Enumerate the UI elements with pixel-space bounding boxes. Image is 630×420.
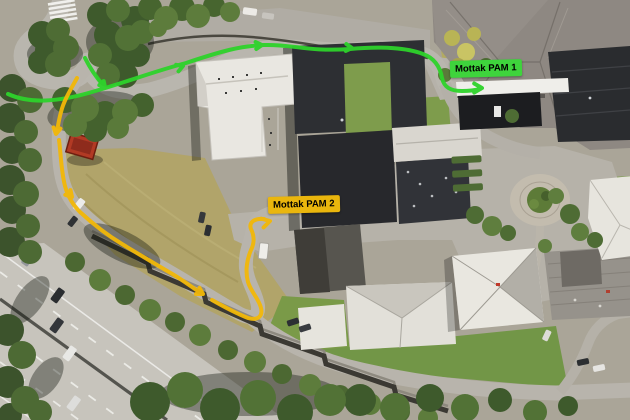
hedges <box>451 155 483 192</box>
label-mottak-pam-1: Mottak PAM 1 <box>450 59 522 78</box>
aerial-photo: Mottak PAM 1 Mottak PAM 2 <box>0 0 630 420</box>
label-mottak-pam-2: Mottak PAM 2 <box>268 195 340 214</box>
building-bottom-center <box>444 248 544 332</box>
